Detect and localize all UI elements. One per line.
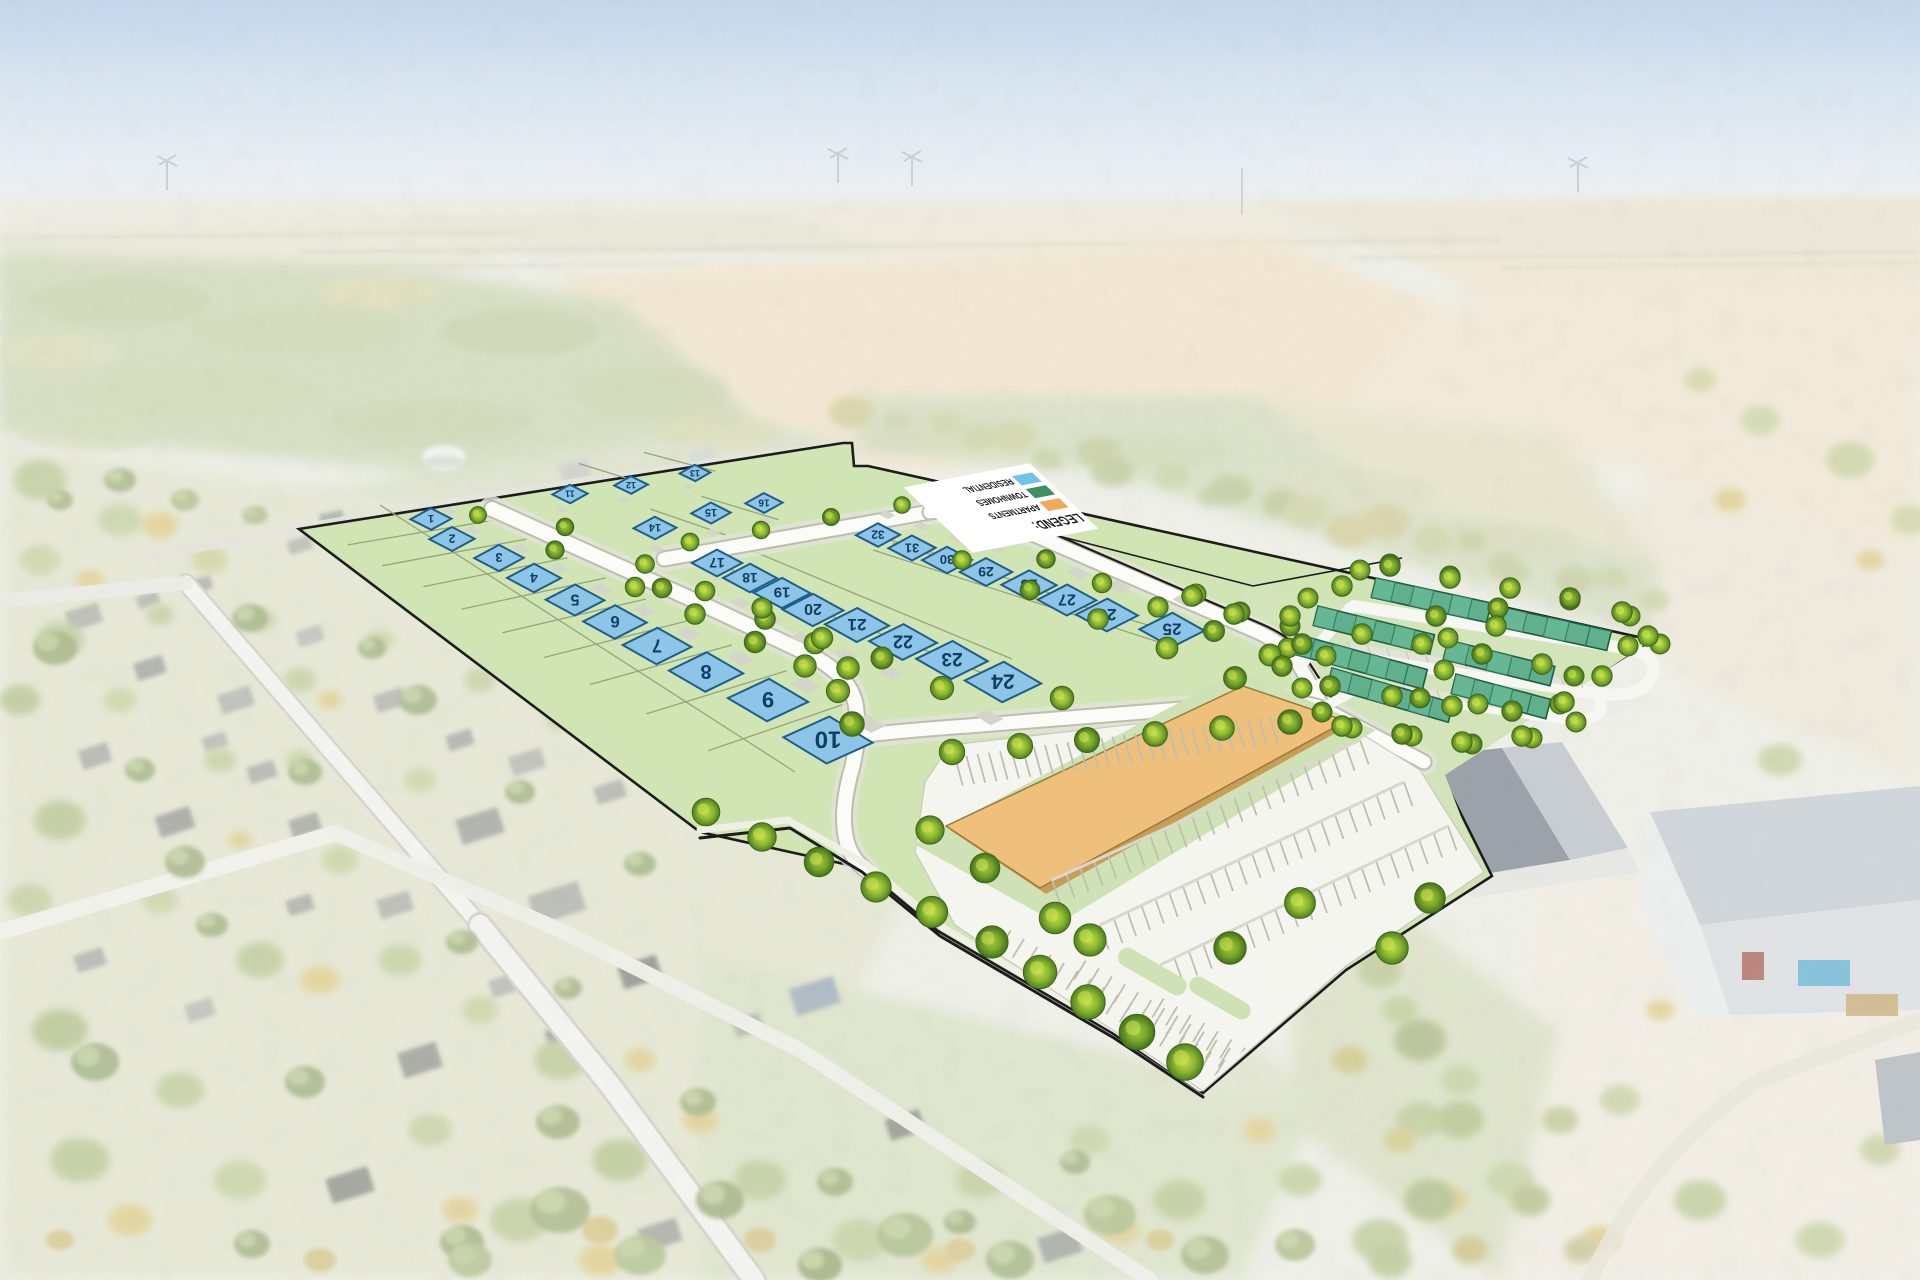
svg-text:20: 20: [804, 600, 822, 617]
svg-text:11: 11: [565, 489, 575, 499]
svg-text:6: 6: [610, 612, 619, 631]
svg-text:30: 30: [940, 552, 954, 567]
svg-text:21: 21: [848, 615, 867, 634]
svg-text:7: 7: [652, 635, 662, 655]
svg-text:3: 3: [495, 550, 502, 565]
svg-text:1: 1: [428, 512, 434, 524]
svg-text:12: 12: [626, 480, 636, 490]
svg-text:16: 16: [758, 496, 770, 507]
svg-text:19: 19: [774, 584, 791, 601]
svg-text:17: 17: [709, 555, 725, 571]
svg-text:31: 31: [905, 540, 919, 555]
svg-text:18: 18: [742, 570, 758, 586]
svg-text:4: 4: [530, 570, 538, 586]
svg-text:8: 8: [700, 660, 711, 682]
svg-text:27: 27: [1058, 590, 1076, 607]
svg-text:10: 10: [815, 725, 842, 752]
svg-text:25: 25: [1163, 620, 1182, 639]
svg-text:14: 14: [648, 521, 661, 533]
svg-text:13: 13: [690, 468, 700, 478]
svg-text:29: 29: [978, 564, 994, 580]
svg-text:23: 23: [941, 648, 962, 669]
svg-text:15: 15: [705, 506, 717, 518]
svg-text:9: 9: [762, 687, 774, 712]
svg-text:24: 24: [991, 670, 1015, 693]
svg-text:22: 22: [893, 631, 913, 651]
svg-text:2: 2: [448, 532, 455, 546]
svg-text:32: 32: [871, 528, 885, 542]
svg-text:5: 5: [570, 590, 579, 607]
